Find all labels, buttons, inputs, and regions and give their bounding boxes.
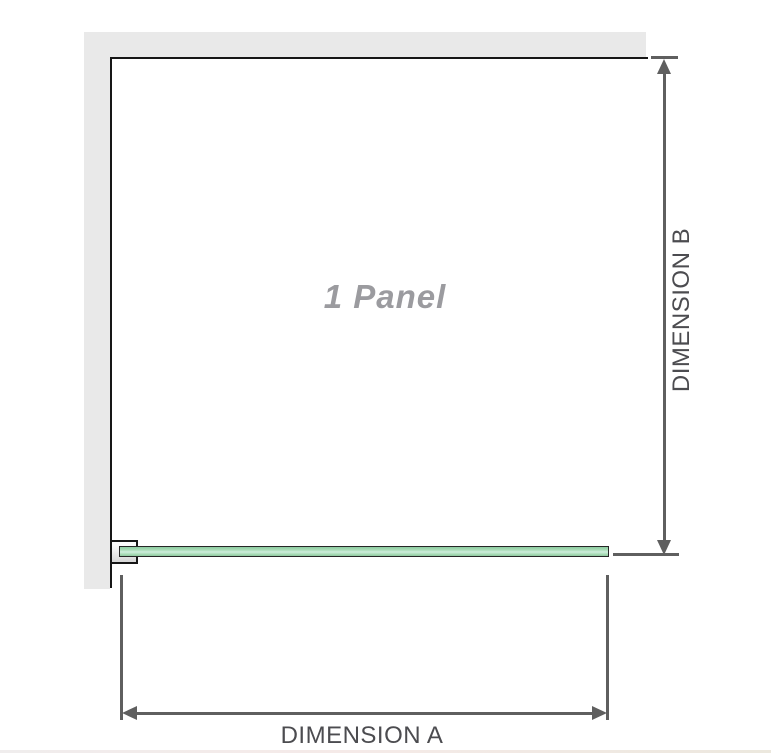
dim-b-label: DIMENSION B (668, 228, 696, 392)
arrow-right-icon (592, 706, 607, 720)
diagram-canvas: 1 Panel DIMENSION B DIMENSION A (0, 0, 771, 755)
arrow-down-icon (657, 540, 671, 555)
dim-a-line (135, 712, 594, 715)
panel-left-edge (110, 57, 112, 588)
dim-a-label: DIMENSION A (281, 722, 444, 750)
panel-label: 1 Panel (324, 278, 447, 316)
dim-b-line (663, 71, 666, 541)
glass-panel-bar (119, 546, 609, 557)
wall-left (84, 32, 110, 589)
wall-top (84, 32, 646, 58)
panel-top-edge (110, 57, 648, 59)
arrow-up-icon (657, 59, 671, 74)
dim-a-extension-right (606, 575, 609, 720)
dim-a-extension-left (120, 575, 123, 720)
arrow-left-icon (122, 706, 137, 720)
bottom-edge-strip (0, 750, 771, 753)
